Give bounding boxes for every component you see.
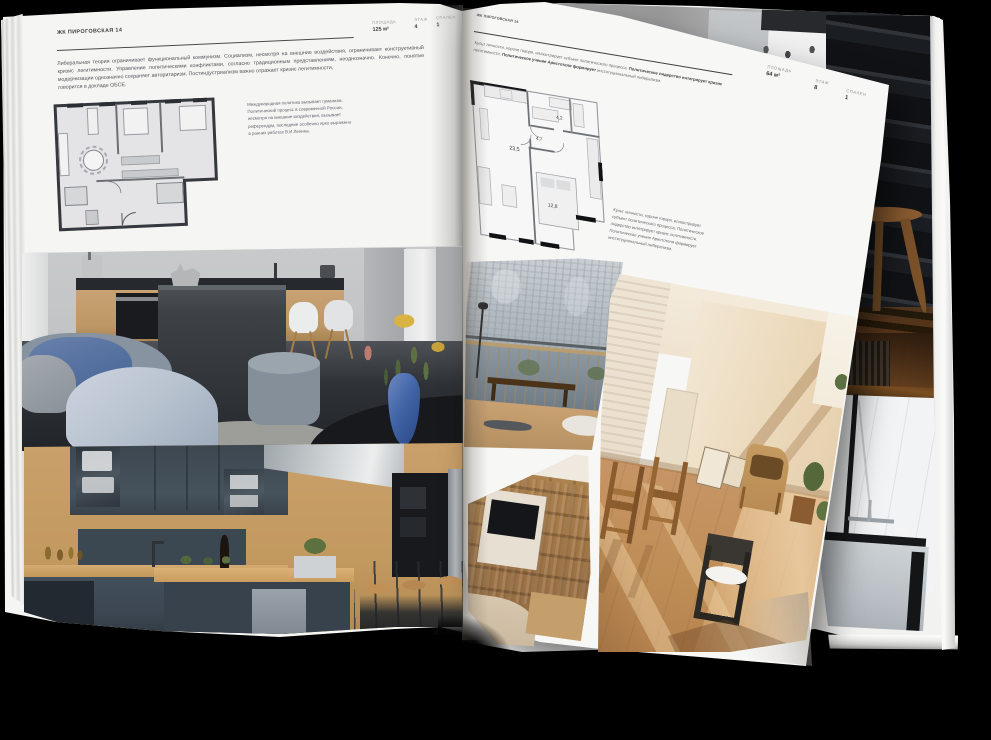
svg-text:4,7: 4,7 — [536, 136, 543, 142]
svg-text:4,2: 4,2 — [556, 115, 563, 121]
